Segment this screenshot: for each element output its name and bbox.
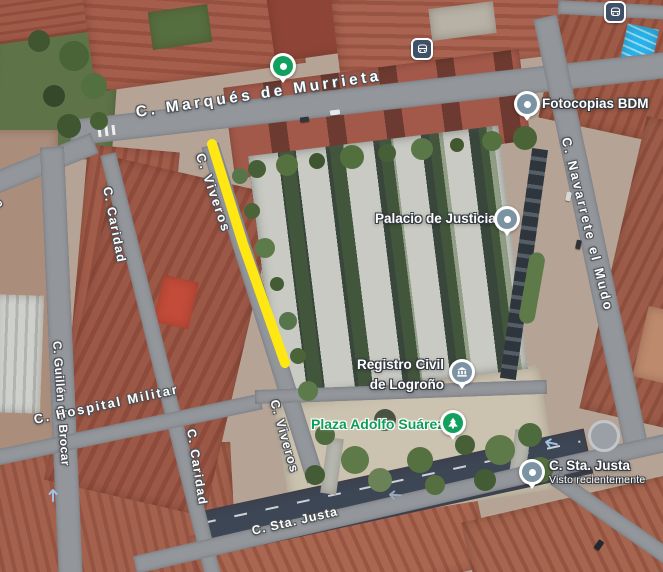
- building-block: [0, 294, 44, 414]
- shop-dot-icon: [273, 56, 293, 76]
- tree-row-viveros: [232, 168, 248, 184]
- pin-plaza-adolfo-suarez[interactable]: [440, 410, 466, 440]
- tree-row-murrieta: [248, 160, 266, 178]
- satellite-map-canvas[interactable]: C. Marqués de Murrieta C. Viveros C. Car…: [0, 0, 663, 572]
- poi-label-palacio-de-justicia[interactable]: Palacio de Justicia: [375, 211, 496, 226]
- pin-bubble: [519, 459, 545, 485]
- pin-shop-top[interactable]: [270, 53, 296, 83]
- poi-title: C. Sta. Justa: [549, 458, 645, 473]
- tree-icon: [443, 413, 463, 433]
- generic-poi-icon: [517, 94, 537, 114]
- poi-label-sta-justa[interactable]: C. Sta. Justa Visto recientemente: [549, 458, 645, 486]
- pin-registro-civil[interactable]: [449, 359, 475, 389]
- car: [300, 116, 310, 122]
- generic-poi-icon: [522, 462, 542, 482]
- pin-bubble: [449, 359, 475, 385]
- poi-label-line1: Registro Civil: [344, 355, 444, 375]
- poi-label-fotocopias-bdm[interactable]: Fotocopias BDM: [542, 96, 649, 111]
- pin-bubble: [270, 53, 296, 79]
- oneway-arrow-icon: [388, 490, 403, 501]
- pin-palacio-de-justicia[interactable]: [494, 206, 520, 236]
- tree-cluster-topleft: [28, 30, 50, 52]
- pin-bubble: [514, 91, 540, 117]
- poi-label-line2: de Logroño: [344, 375, 444, 395]
- pin-sta-justa-recent[interactable]: [519, 459, 545, 489]
- pin-fotocopias-bdm[interactable]: [514, 91, 540, 121]
- civic-building-icon: [452, 362, 472, 382]
- pin-bubble: [440, 410, 466, 436]
- poi-subtitle-visited-recently: Visto recientemente: [549, 474, 645, 486]
- roundabout: [588, 420, 620, 452]
- pin-bubble: [494, 206, 520, 232]
- oneway-arrow-icon: [48, 488, 58, 502]
- poi-label-registro-civil[interactable]: Registro Civil de Logroño: [344, 355, 444, 395]
- transit-station-icon[interactable]: [604, 1, 626, 23]
- poi-label-plaza-adolfo-suarez[interactable]: Plaza Adolfo Suárez: [311, 416, 444, 432]
- transit-station-icon[interactable]: [411, 38, 433, 60]
- generic-poi-icon: [497, 209, 517, 229]
